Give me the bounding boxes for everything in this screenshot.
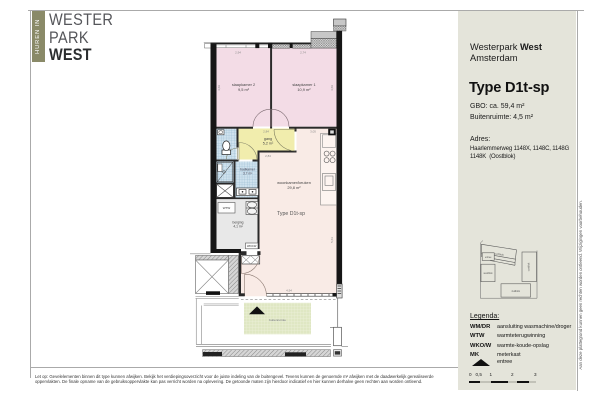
svg-text:3,05: 3,05 (310, 130, 316, 134)
svg-text:10,9 m²: 10,9 m² (297, 87, 311, 92)
svg-text:3,7 m²: 3,7 m² (243, 172, 253, 176)
svg-text:WKO/W: WKO/W (247, 244, 257, 248)
svg-text:29,8 m²: 29,8 m² (287, 185, 301, 190)
svg-text:4,1 m²: 4,1 m² (233, 225, 243, 229)
svg-text:2,84: 2,84 (263, 130, 269, 134)
svg-text:Type D1t-sp: Type D1t-sp (277, 211, 305, 217)
svg-text:5,2 m²: 5,2 m² (263, 142, 274, 146)
svg-text:buitenruimte: buitenruimte (269, 318, 286, 322)
svg-text:9,5 m²: 9,5 m² (238, 87, 250, 92)
svg-text:WTW: WTW (223, 206, 231, 210)
svg-text:entree: entree (485, 256, 492, 259)
svg-text:4,94: 4,94 (286, 289, 292, 293)
svg-text:4,69: 4,69 (330, 85, 334, 91)
svg-text:2,84: 2,84 (265, 154, 271, 158)
svg-text:zuidblok: zuidblok (511, 291, 520, 293)
svg-text:2,94: 2,94 (235, 50, 241, 54)
svg-text:2,74: 2,74 (300, 50, 306, 54)
svg-text:4,69: 4,69 (217, 85, 221, 91)
svg-text:gang: gang (264, 137, 272, 141)
svg-text:westblok: westblok (484, 272, 494, 275)
svg-text:oostblok: oostblok (527, 262, 530, 271)
svg-text:5,63: 5,63 (330, 237, 334, 243)
